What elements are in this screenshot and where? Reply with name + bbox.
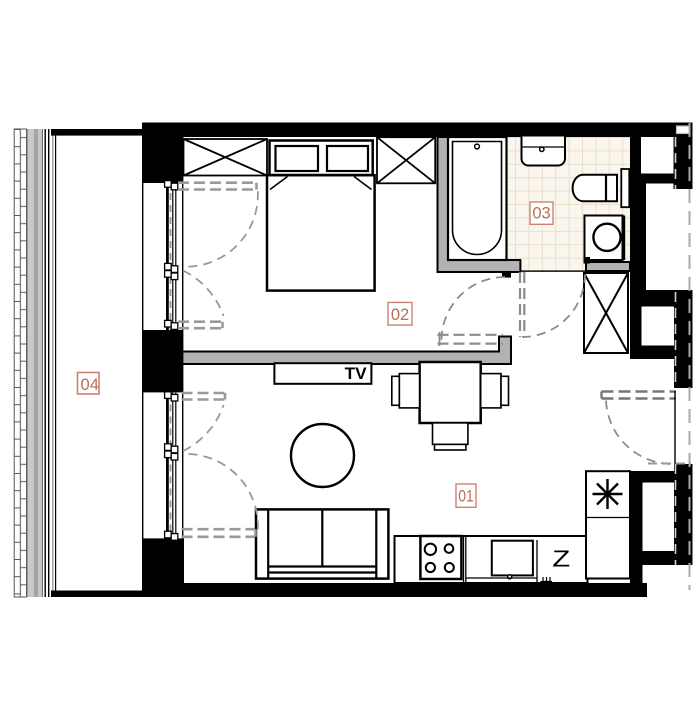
svg-text:04: 04 <box>81 376 99 394</box>
svg-text:02: 02 <box>391 306 409 324</box>
svg-text:01: 01 <box>458 488 474 506</box>
svg-text:03: 03 <box>532 205 550 223</box>
svg-text:TV: TV <box>345 365 367 383</box>
svg-text:Z: Z <box>552 546 570 572</box>
